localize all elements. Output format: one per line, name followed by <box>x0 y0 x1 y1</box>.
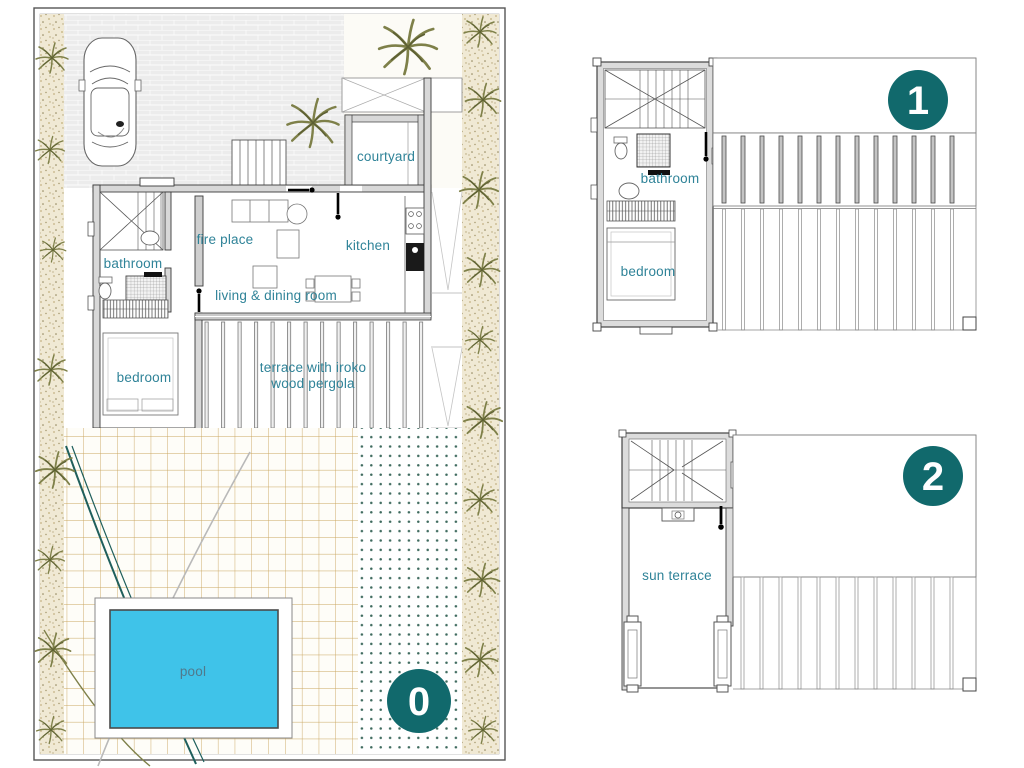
label-bathroom-ground: bathroom <box>104 256 163 271</box>
bathroom-fixtures: bathroom <box>99 256 166 300</box>
label-sun-terrace: sun terrace <box>642 568 712 583</box>
second-floor-plan: sun terrace <box>619 430 976 692</box>
label-bedroom-first: bedroom <box>621 264 676 279</box>
label-living-dining: living & dining room <box>215 288 337 303</box>
storage-roof <box>342 78 462 112</box>
floor-badge-0: 0 <box>387 669 451 733</box>
label-terrace-line2: wood pergola <box>270 376 355 391</box>
courtyard: courtyard <box>345 115 425 190</box>
svg-text:1: 1 <box>907 79 929 123</box>
first-floor-bedroom: bedroom <box>607 201 675 300</box>
sliding-door-band <box>195 313 431 320</box>
floorplan-sheet: courtyard <box>0 0 1024 768</box>
pool-area: pool <box>95 598 292 738</box>
label-bedroom-ground: bedroom <box>117 370 172 385</box>
label-pool: pool <box>180 664 206 679</box>
label-terrace-line1: terrace with iroko <box>260 360 366 375</box>
svg-text:0: 0 <box>408 680 430 724</box>
floor-badge-1: 1 <box>888 70 948 130</box>
sun-terrace: sun terrace <box>622 508 733 692</box>
label-fire-place: fire place <box>197 232 254 247</box>
car-top-view <box>79 38 141 166</box>
ground-floor-plan: courtyard <box>34 8 505 766</box>
label-courtyard: courtyard <box>357 149 415 164</box>
bathroom-sink <box>141 231 159 245</box>
floor-badge-2: 2 <box>903 446 963 506</box>
bedroom-ground: bedroom <box>103 300 178 415</box>
right-vegetation-strip <box>462 14 499 754</box>
first-floor-plan: bathroom bedroom <box>591 58 976 334</box>
stair-bulkhead <box>619 430 739 530</box>
svg-text:2: 2 <box>922 455 944 499</box>
label-bathroom-first: bathroom <box>641 171 700 186</box>
label-kitchen: kitchen <box>346 238 390 253</box>
entry-steps <box>232 140 286 188</box>
